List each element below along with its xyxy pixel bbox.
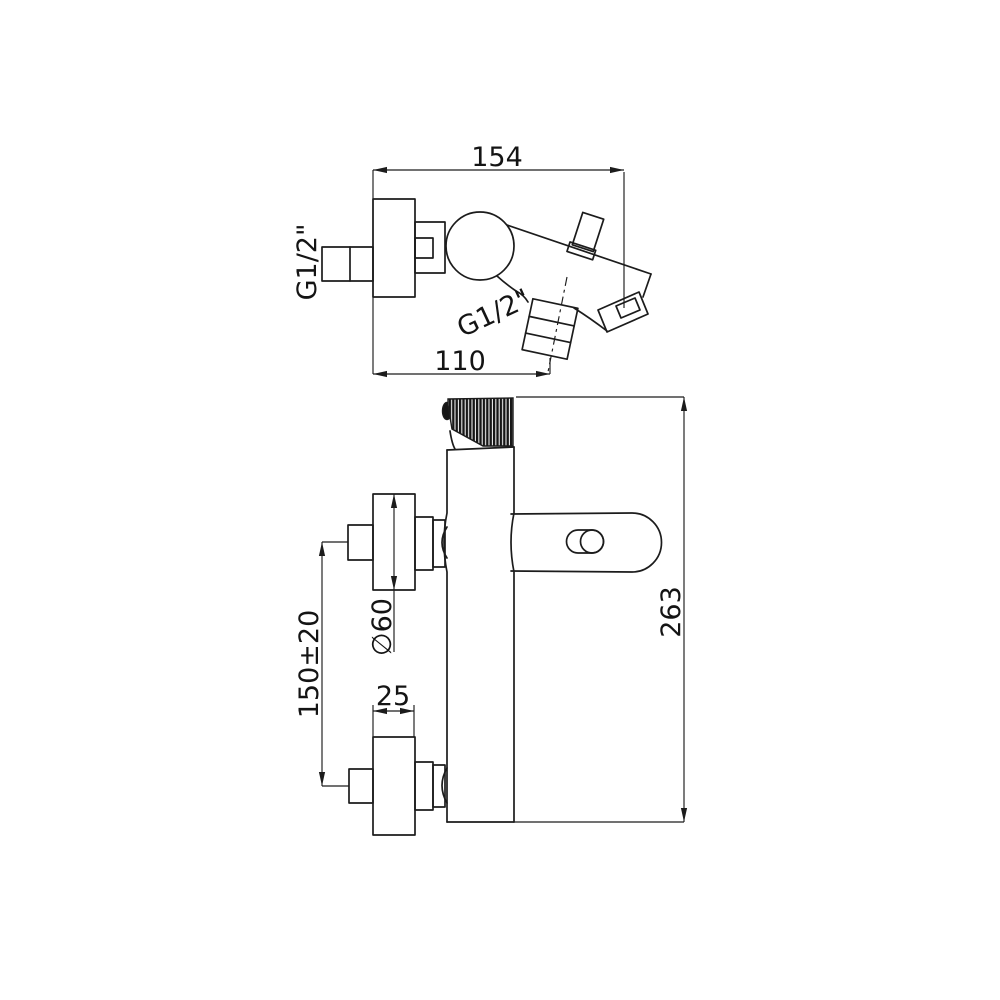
lower-escutcheon bbox=[349, 737, 447, 835]
dim-inlet-spacing: 150±20 bbox=[294, 542, 349, 786]
lever-handle bbox=[511, 513, 662, 572]
technical-drawing: 154 G1/2" bbox=[0, 0, 1000, 1000]
wall-flange-side bbox=[373, 199, 415, 297]
dim-escutcheon-depth-label: 25 bbox=[376, 681, 410, 712]
mixer-body-sphere bbox=[446, 212, 514, 280]
body-column bbox=[444, 447, 514, 822]
label-inlet-thread: G1/2" bbox=[292, 224, 323, 301]
dim-escutcheon-dia-label: ∅60 bbox=[367, 598, 398, 656]
front-view: ∅60 150±20 25 263 bbox=[294, 397, 687, 835]
spout-aerator bbox=[598, 292, 648, 332]
dim-escutcheon-depth: 25 bbox=[373, 681, 414, 737]
dim-height-263: 263 bbox=[514, 397, 687, 822]
body-adapter-side bbox=[415, 222, 445, 273]
dim-width-label: 154 bbox=[471, 142, 523, 173]
dim-reach-label: 110 bbox=[434, 346, 486, 377]
drawing-canvas: 154 G1/2" bbox=[0, 0, 1000, 1000]
upper-escutcheon bbox=[348, 494, 447, 590]
dim-height-label: 263 bbox=[656, 586, 687, 638]
knurled-cap bbox=[443, 398, 514, 449]
label-handshower-thread: G1/2" bbox=[452, 283, 535, 344]
inlet-nipple-side bbox=[322, 247, 373, 281]
side-view: 154 G1/2" bbox=[292, 142, 651, 377]
dim-inlet-spacing-label: 150±20 bbox=[294, 610, 325, 719]
dim-escutcheon-dia: ∅60 bbox=[367, 494, 398, 656]
handshower-outlet-nut bbox=[522, 277, 578, 372]
handle-button bbox=[581, 530, 604, 553]
